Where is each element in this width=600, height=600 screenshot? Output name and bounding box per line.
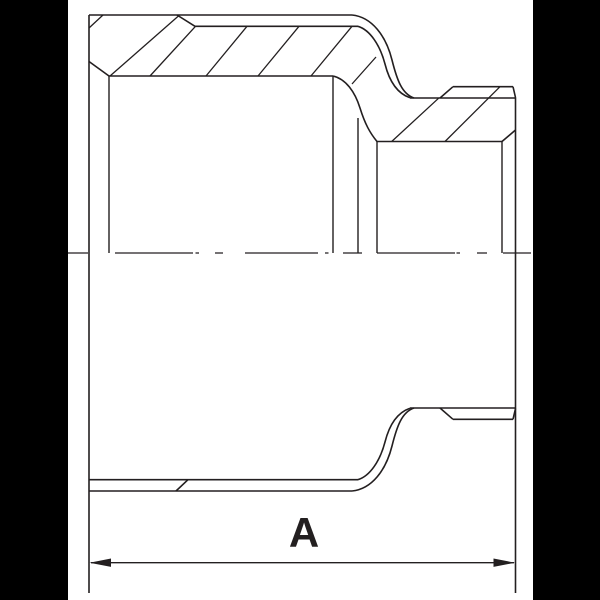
section-hatching-path (150, 26, 196, 76)
section-hatching-path (352, 57, 376, 84)
letterboxed-image: A (0, 0, 600, 600)
section-hatching-path (311, 26, 352, 76)
section-hatching-path (89, 15, 103, 28)
part-outline-path (333, 76, 377, 142)
section-hatching-path (206, 26, 247, 76)
part-outline-path (502, 130, 516, 142)
dimension-arrowhead (494, 559, 516, 567)
part-outline-path (440, 87, 453, 98)
section-hatching-group (89, 15, 500, 142)
section-hatching-path (392, 98, 439, 141)
part-outline-path (89, 62, 109, 77)
section-hatching-path (110, 16, 179, 77)
dimension-arrow-group (90, 559, 516, 567)
part-outline-path (513, 87, 516, 98)
part-outline-group (89, 15, 516, 593)
section-hatching-path (258, 26, 299, 76)
section-hatching-path (445, 87, 500, 142)
dimension-label: A (289, 512, 319, 554)
edge-projection-group (109, 76, 502, 253)
part-outline-path (440, 408, 453, 419)
part-outline-path (177, 15, 195, 26)
dimension-arrowhead (90, 559, 112, 567)
part-outline-path (176, 480, 188, 491)
